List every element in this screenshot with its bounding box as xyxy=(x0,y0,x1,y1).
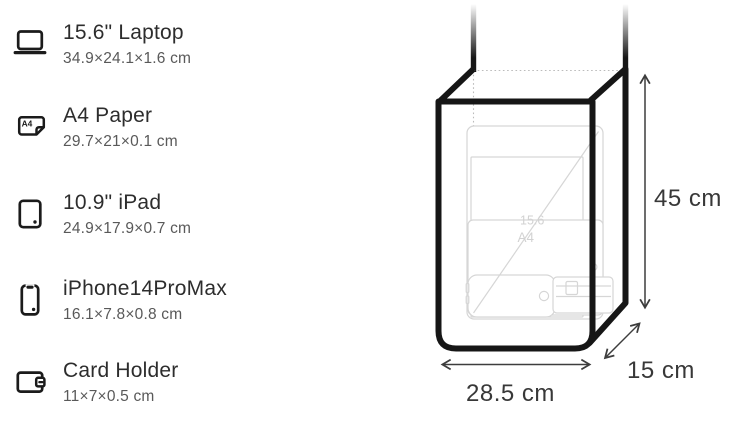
height-dimension-label: 45 cm xyxy=(654,185,722,212)
bag-top-left-edge xyxy=(441,69,474,101)
bag-top-right-edge xyxy=(591,69,626,101)
ghost-laptop-label: 15.6 xyxy=(520,214,544,228)
bag-capacity-infographic: 15.6" Laptop 34.9×24.1×1.6 cm A4 A4 Pape… xyxy=(0,0,750,426)
ghost-card-holder xyxy=(553,277,613,313)
bag-dimension-diagram: 15.6 A4 45 cm 15 cm 28.5 cm xyxy=(0,0,750,426)
ghost-a4-label: A4 xyxy=(518,230,535,245)
ghost-iphone xyxy=(468,275,555,317)
depth-arrow xyxy=(606,324,640,358)
depth-dimension-label: 15 cm xyxy=(627,357,695,384)
strap-lines xyxy=(471,4,628,72)
width-dimension-label: 28.5 cm xyxy=(466,380,555,407)
